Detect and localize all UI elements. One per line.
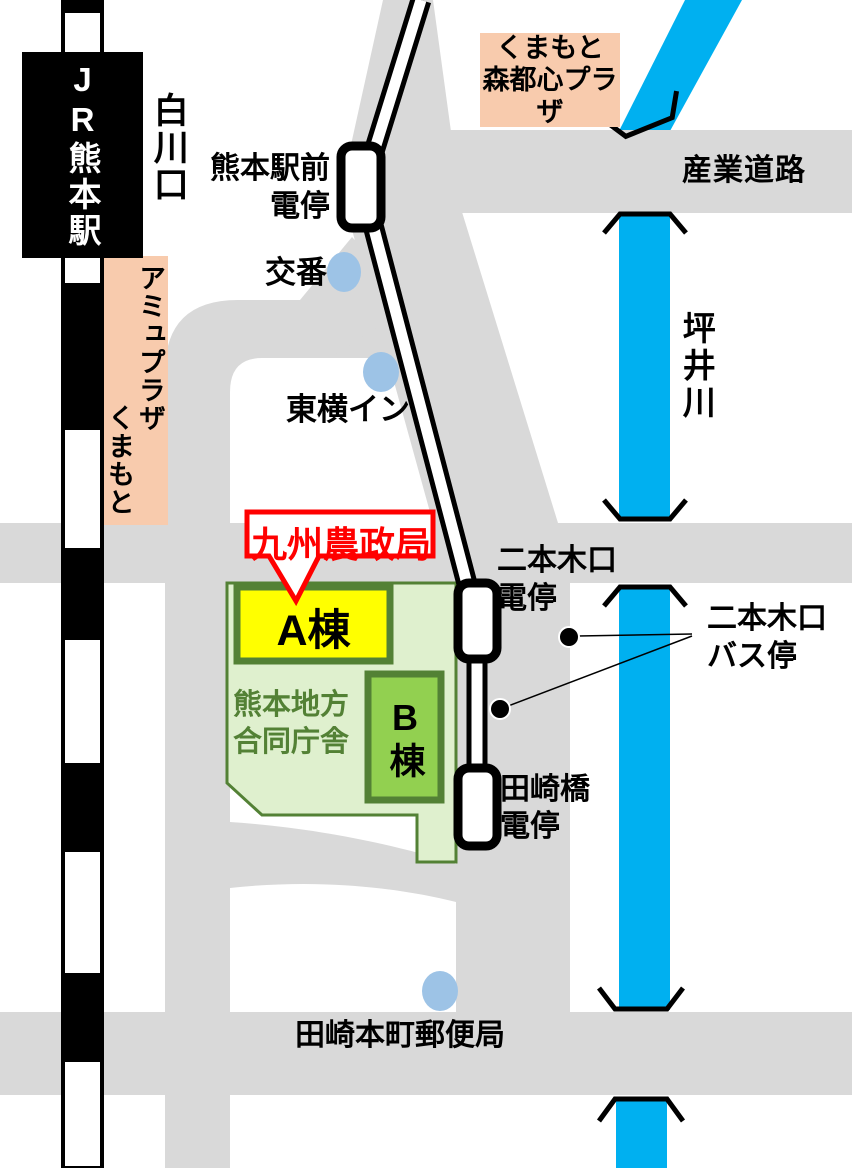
tasakibashi-stop-line1: 田崎橋 [500,771,590,808]
tram-stop-kumamoto-ekimae [341,146,381,228]
agency-callout-label: 九州農政局 [246,516,436,568]
post-office-dot [422,971,458,1011]
shirakawa-exit-label: 白川口 [146,92,189,203]
toyoko-inn-dot [363,352,399,392]
shintoshin-plaza-box: くまもと 森都心プラザ [480,33,620,127]
building-b-label: B棟 [379,697,431,782]
shintoshin-plaza-label-line2: 森都心プラザ [480,64,620,128]
nihongiguchi-stop-label: 二本木口 電停 [497,542,617,618]
koban-label: 交番 [265,254,327,292]
bus-stop-dot [490,699,510,719]
amu-plaza-label-line1: アミュプラザ [133,264,166,432]
route-map: JR熊本駅 白川口 アミュプラザ くまもと くまもと 森都心プラザ 産業道路 坪… [0,0,852,1168]
tasakibashi-stop-line2: 電停 [500,808,590,845]
kumamoto-ekimae-stop-line1: 熊本駅前 [196,150,330,188]
gov-complex-line2: 合同庁舎 [233,724,349,761]
sangyo-road-label: 産業道路 [682,153,806,190]
building-b-label-box: B棟 [368,684,441,794]
shintoshin-plaza-label-line1: くまもと [496,32,603,64]
amu-plaza-label-line2: くまもと [102,404,135,516]
bus-stop-dot [559,627,579,647]
tsuboi-river-label: 坪井川 [676,311,716,422]
nihongiguchi-stop-line1: 二本木口 [497,542,617,580]
tasakibashi-stop-label: 田崎橋 電停 [500,771,590,845]
building-a-label: A棟 [237,596,390,658]
jr-station-label: JR熊本駅 [66,61,99,249]
gov-complex-label: 熊本地方 合同庁舎 [233,687,349,761]
nihongiguchi-stop-line2: 電停 [497,580,617,618]
nihongiguchi-bus-label: 二本木口 バス停 [707,600,827,676]
kumamoto-ekimae-stop-label: 熊本駅前 電停 [196,150,330,226]
tram-stop-tasakibashi [458,768,497,846]
nihongiguchi-bus-line1: 二本木口 [707,600,827,638]
tram-stop-nihongiguchi [458,583,497,659]
nihongiguchi-bus-line2: バス停 [707,638,827,676]
kumamoto-ekimae-stop-line2: 電停 [196,188,330,226]
jr-station-box: JR熊本駅 [22,52,143,258]
left-road-shape [165,395,230,1168]
toyoko-inn-label: 東横イン [286,391,410,429]
gov-complex-line1: 熊本地方 [233,687,349,724]
koban-dot [327,252,361,292]
post-office-label: 田崎本町郵便局 [295,1018,505,1055]
